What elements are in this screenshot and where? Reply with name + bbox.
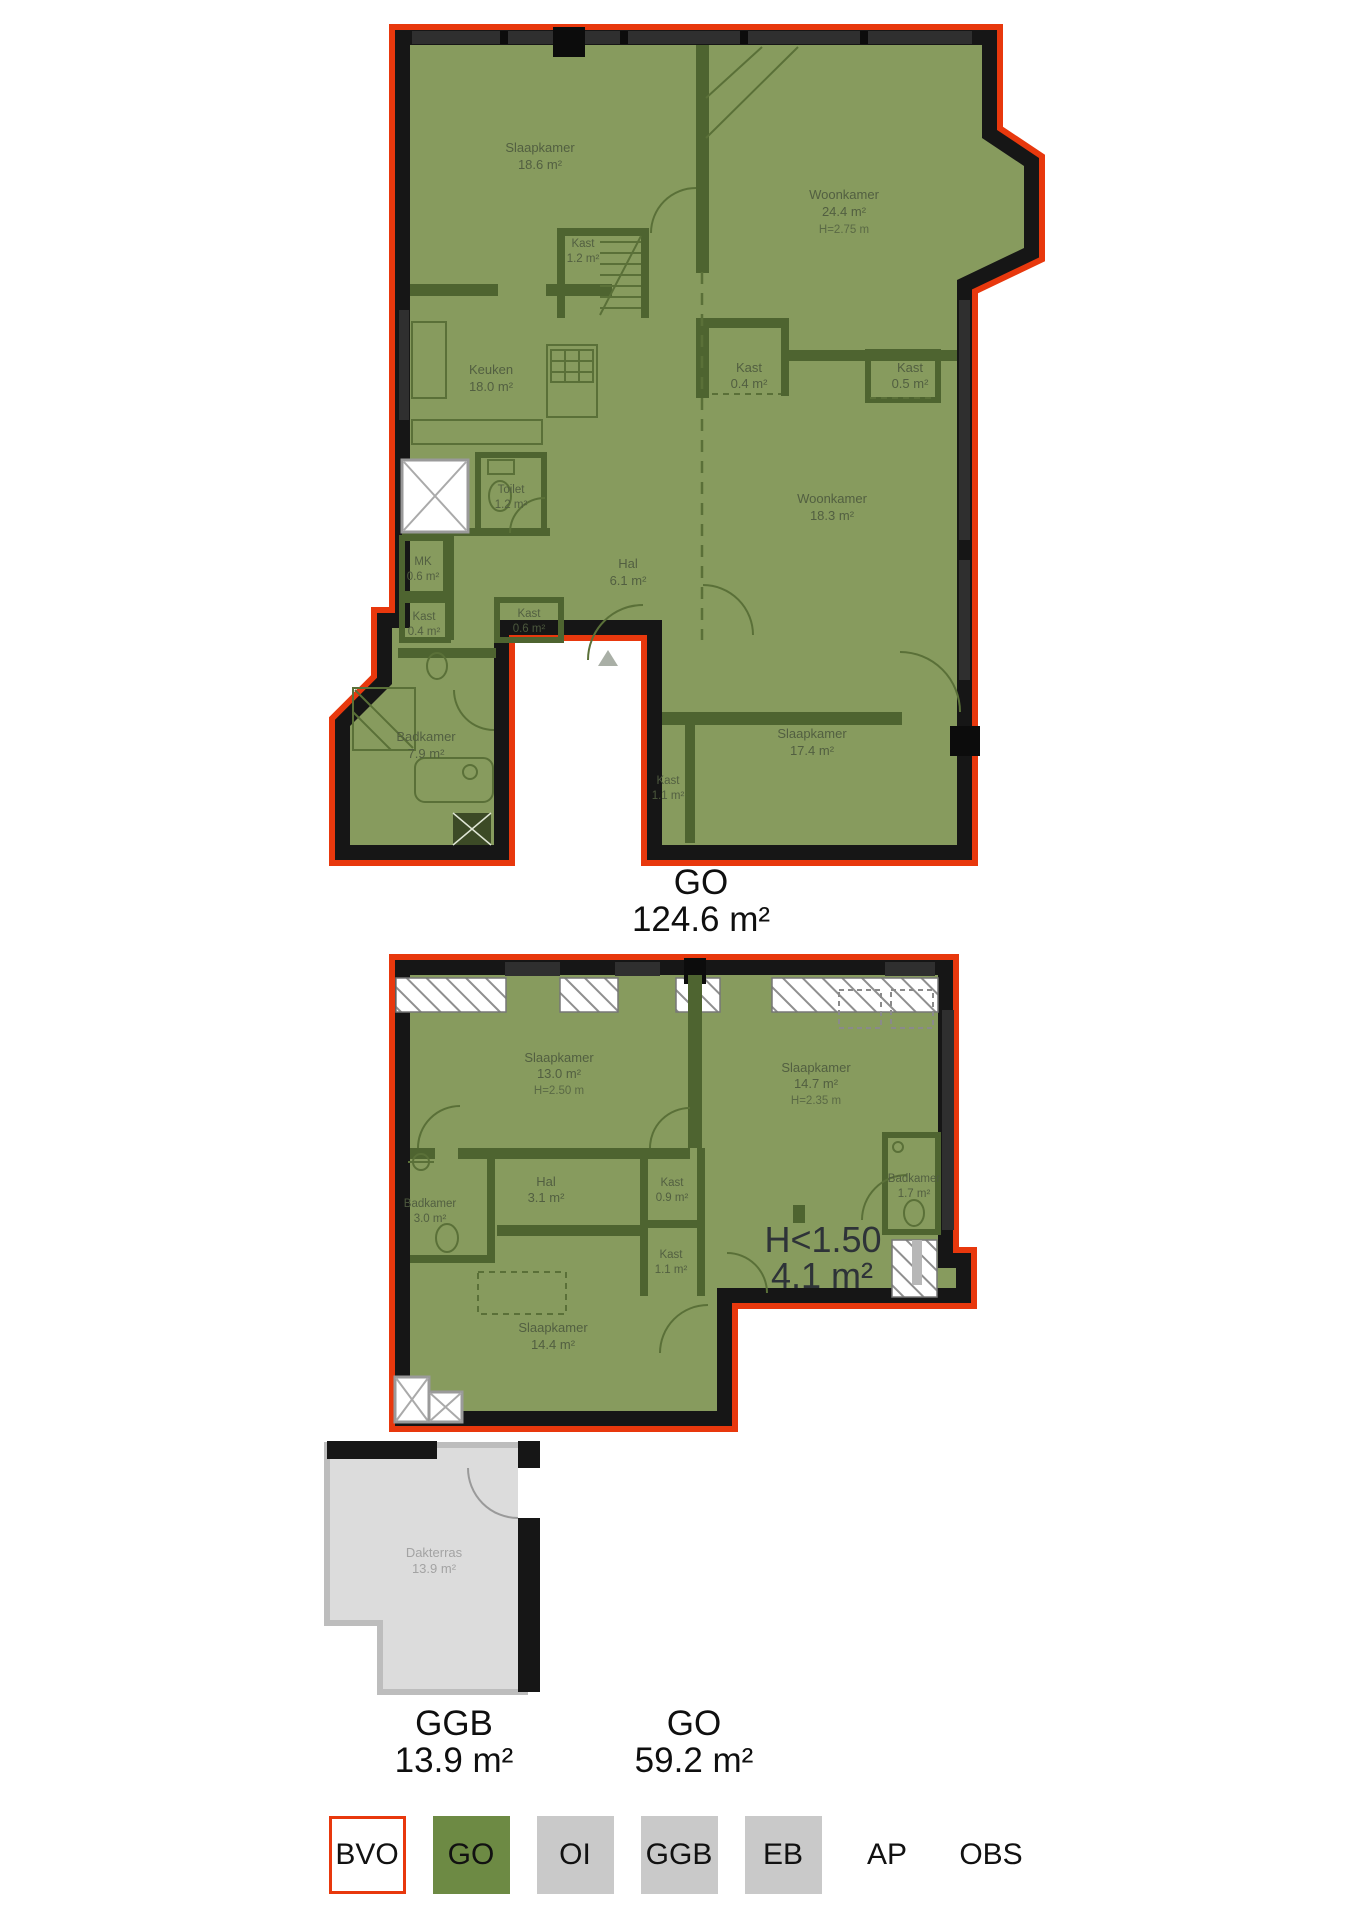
svg-text:18.0 m²: 18.0 m²	[469, 379, 514, 394]
svg-text:24.4 m²: 24.4 m²	[822, 204, 867, 219]
window-segment	[885, 962, 935, 976]
svg-text:Hal: Hal	[536, 1174, 556, 1189]
legend-item-oi: OI	[537, 1816, 614, 1894]
wall-badkamer-top	[398, 648, 496, 658]
legend: BVO GO OI GGB EB AP OBS	[0, 1816, 1358, 1894]
wall-kast11	[685, 725, 695, 843]
window-block-right	[950, 726, 980, 756]
svg-text:Kast: Kast	[412, 611, 436, 623]
svg-text:0.6 m²: 0.6 m²	[513, 623, 546, 635]
svg-text:Kast: Kast	[517, 608, 541, 620]
wall-kast-divider	[640, 1220, 705, 1228]
legend-item-ggb: GGB	[641, 1816, 718, 1894]
north-arrow	[598, 650, 618, 666]
legend-item-go: GO	[433, 1816, 510, 1894]
sloped-roof-hatch	[396, 978, 506, 1012]
window-segment	[615, 962, 660, 976]
svg-text:Slaapkamer: Slaapkamer	[781, 1060, 851, 1075]
terrace-total-area: 13.9 m²	[395, 1742, 514, 1779]
window-band-left	[399, 310, 409, 420]
legend-label: AP	[867, 1838, 907, 1872]
svg-text:18.6 m²: 18.6 m²	[518, 157, 563, 172]
svg-text:Badkamer: Badkamer	[396, 729, 456, 744]
window-band-right	[942, 1010, 954, 1230]
svg-text:Woonkamer: Woonkamer	[797, 491, 868, 506]
floor1-total-code: GO	[632, 864, 770, 901]
svg-text:Slaapkamer: Slaapkamer	[777, 726, 847, 741]
svg-text:Slaapkamer: Slaapkamer	[505, 140, 575, 155]
legend-item-eb: EB	[745, 1816, 822, 1894]
window-band-top	[412, 31, 972, 44]
floorplan-canvas: Slaapkamer 18.6 m² Woonkamer 24.4 m² H=2…	[0, 0, 1358, 1920]
window-segment	[505, 962, 560, 976]
wall-stair-right	[641, 228, 649, 318]
window-band-right-1	[959, 300, 970, 540]
svg-text:18.3 m²: 18.3 m²	[810, 508, 855, 523]
wall-kast-left	[557, 228, 565, 318]
svg-text:0.4 m²: 0.4 m²	[731, 376, 769, 391]
floorplan-floor-1: Slaapkamer 18.6 m² Woonkamer 24.4 m² H=2…	[350, 27, 1024, 845]
wall-segment	[458, 1148, 690, 1159]
svg-text:13.0 m²: 13.0 m²	[537, 1066, 582, 1081]
svg-text:Woonkamer: Woonkamer	[809, 187, 880, 202]
svg-text:1.2 m²: 1.2 m²	[495, 499, 528, 511]
legend-item-bvo: BVO	[329, 1816, 406, 1894]
wall-kast-right	[781, 318, 789, 396]
svg-text:Kast: Kast	[571, 238, 595, 250]
svg-text:Slaapkamer: Slaapkamer	[518, 1320, 588, 1335]
hatch-post	[912, 1240, 922, 1285]
svg-text:Hal: Hal	[618, 556, 638, 571]
svg-text:14.7 m²: 14.7 m²	[794, 1076, 839, 1091]
wall-slaapkamer2-top	[662, 712, 902, 725]
svg-text:MK: MK	[414, 556, 432, 568]
svg-text:Badkamer: Badkamer	[404, 1198, 457, 1210]
legend-label: GGB	[646, 1838, 713, 1872]
window-band-right-2	[959, 560, 970, 680]
svg-text:Badkamer: Badkamer	[888, 1173, 941, 1185]
floorplan-floor-2: Slaapkamer 13.0 m² H=2.50 m Slaapkamer 1…	[395, 958, 956, 1422]
terrace-total-code: GGB	[395, 1705, 514, 1742]
svg-text:1.2 m²: 1.2 m²	[567, 253, 600, 265]
window-tick	[620, 31, 628, 44]
chimney-block	[553, 27, 585, 57]
svg-text:Kast: Kast	[736, 360, 762, 375]
svg-text:Kast: Kast	[656, 775, 680, 787]
floor2-total-area: 59.2 m²	[635, 1742, 754, 1779]
svg-text:0.6 m²: 0.6 m²	[407, 571, 440, 583]
legend-label: OI	[559, 1838, 591, 1872]
wall-segment	[410, 284, 498, 296]
legend-label: EB	[763, 1838, 803, 1872]
svg-text:0.4 m²: 0.4 m²	[408, 626, 441, 638]
svg-text:Toilet: Toilet	[498, 484, 526, 496]
svg-text:1.1 m²: 1.1 m²	[652, 790, 685, 802]
svg-text:H=2.75 m: H=2.75 m	[819, 224, 869, 236]
window-tick	[740, 31, 748, 44]
wall-badkamer-bottom	[410, 1255, 495, 1263]
wall-stair-top	[557, 228, 649, 236]
roof-terrace: Dakterras 13.9 m²	[327, 1441, 540, 1692]
legend-label: BVO	[335, 1838, 398, 1872]
svg-text:Slaapkamer: Slaapkamer	[524, 1050, 594, 1065]
svg-text:14.4 m²: 14.4 m²	[531, 1337, 576, 1352]
svg-text:Keuken: Keuken	[469, 362, 513, 377]
room-label-dakterras: Dakterras 13.9 m²	[406, 1545, 463, 1576]
wall-badkamer-right	[487, 1159, 495, 1259]
legend-item-ap: AP	[849, 1816, 926, 1894]
wall-slaapkamer-woonkamer	[696, 45, 709, 273]
floor2-total-label: GO 59.2 m²	[635, 1705, 754, 1779]
svg-text:Dakterras: Dakterras	[406, 1545, 463, 1560]
svg-text:4.1 m²: 4.1 m²	[771, 1255, 873, 1296]
window-tick	[860, 31, 868, 44]
floor2-total-code: GO	[635, 1705, 754, 1742]
svg-text:3.0 m²: 3.0 m²	[414, 1213, 447, 1225]
floor1-total-label: GO 124.6 m²	[632, 864, 770, 938]
low-height-annotation: H<1.50 4.1 m²	[764, 1219, 881, 1296]
legend-item-obs: OBS	[953, 1816, 1030, 1894]
svg-text:H<1.50: H<1.50	[764, 1219, 881, 1260]
svg-text:Kast: Kast	[660, 1177, 684, 1189]
svg-text:0.5 m²: 0.5 m²	[892, 376, 930, 391]
svg-text:13.9 m²: 13.9 m²	[412, 1561, 457, 1576]
terrace-total-label: GGB 13.9 m²	[395, 1705, 514, 1779]
svg-text:Kast: Kast	[897, 360, 923, 375]
svg-text:0.9 m²: 0.9 m²	[656, 1192, 689, 1204]
sloped-roof-hatch	[772, 978, 938, 1012]
legend-label: GO	[448, 1838, 495, 1872]
svg-text:17.4 m²: 17.4 m²	[790, 743, 835, 758]
wall-hal-bottom	[497, 1225, 640, 1236]
svg-text:1.7 m²: 1.7 m²	[898, 1188, 931, 1200]
wall-kast-top	[709, 318, 789, 328]
legend-label: OBS	[959, 1838, 1022, 1872]
terrace-door-gap	[518, 1468, 540, 1518]
sloped-roof-hatch	[560, 978, 618, 1012]
svg-text:H=2.50 m: H=2.50 m	[534, 1085, 584, 1097]
svg-text:H=2.35 m: H=2.35 m	[791, 1095, 841, 1107]
svg-text:Kast: Kast	[659, 1249, 683, 1261]
svg-text:1.1 m²: 1.1 m²	[655, 1264, 688, 1276]
svg-text:3.1 m²: 3.1 m²	[528, 1190, 566, 1205]
floor1-total-area: 124.6 m²	[632, 901, 770, 938]
window-tick	[500, 31, 508, 44]
terrace-wall-top	[327, 1441, 437, 1459]
svg-text:7.9 m²: 7.9 m²	[408, 746, 446, 761]
wall-slaapkamers-divider	[688, 975, 702, 1148]
svg-text:6.1 m²: 6.1 m²	[610, 573, 648, 588]
